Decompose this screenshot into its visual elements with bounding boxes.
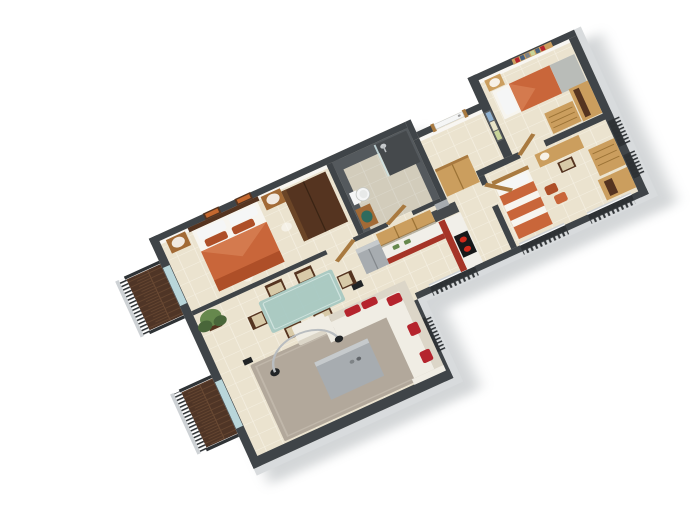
floorplan-svg (40, 16, 700, 516)
floorplan-scene: 3D isometric floor plan render of a thre… (40, 16, 700, 516)
